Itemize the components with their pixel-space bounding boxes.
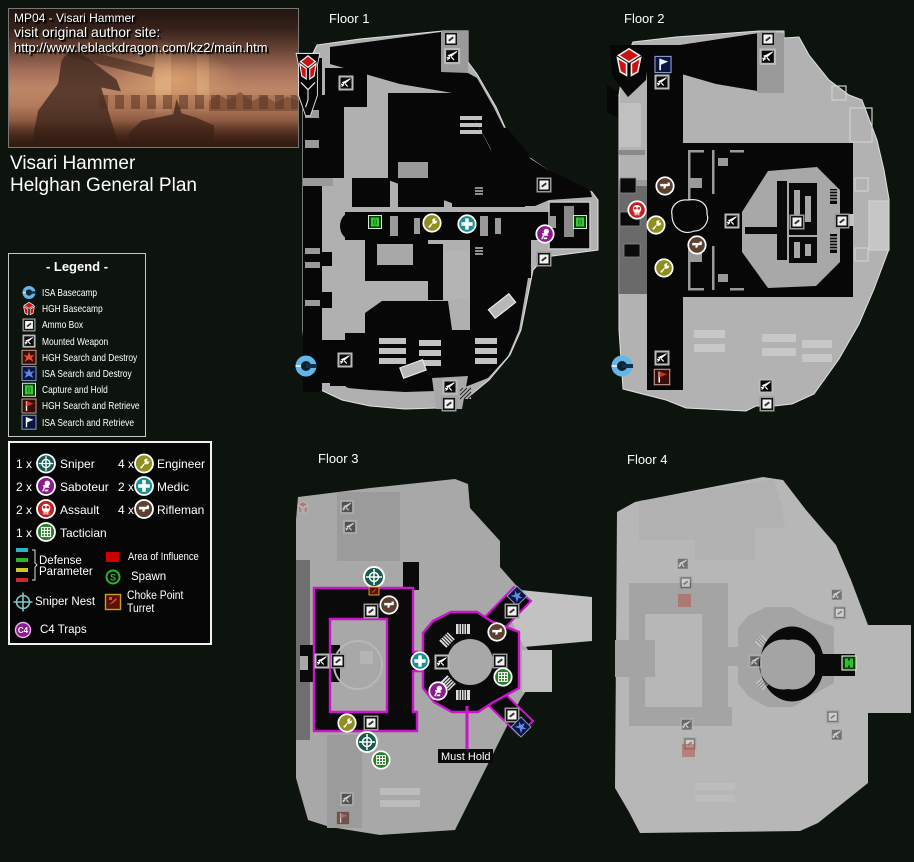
svg-text:Must Hold: Must Hold: [441, 751, 491, 763]
svg-text:C4: C4: [18, 626, 29, 635]
svg-text:S: S: [110, 573, 116, 583]
